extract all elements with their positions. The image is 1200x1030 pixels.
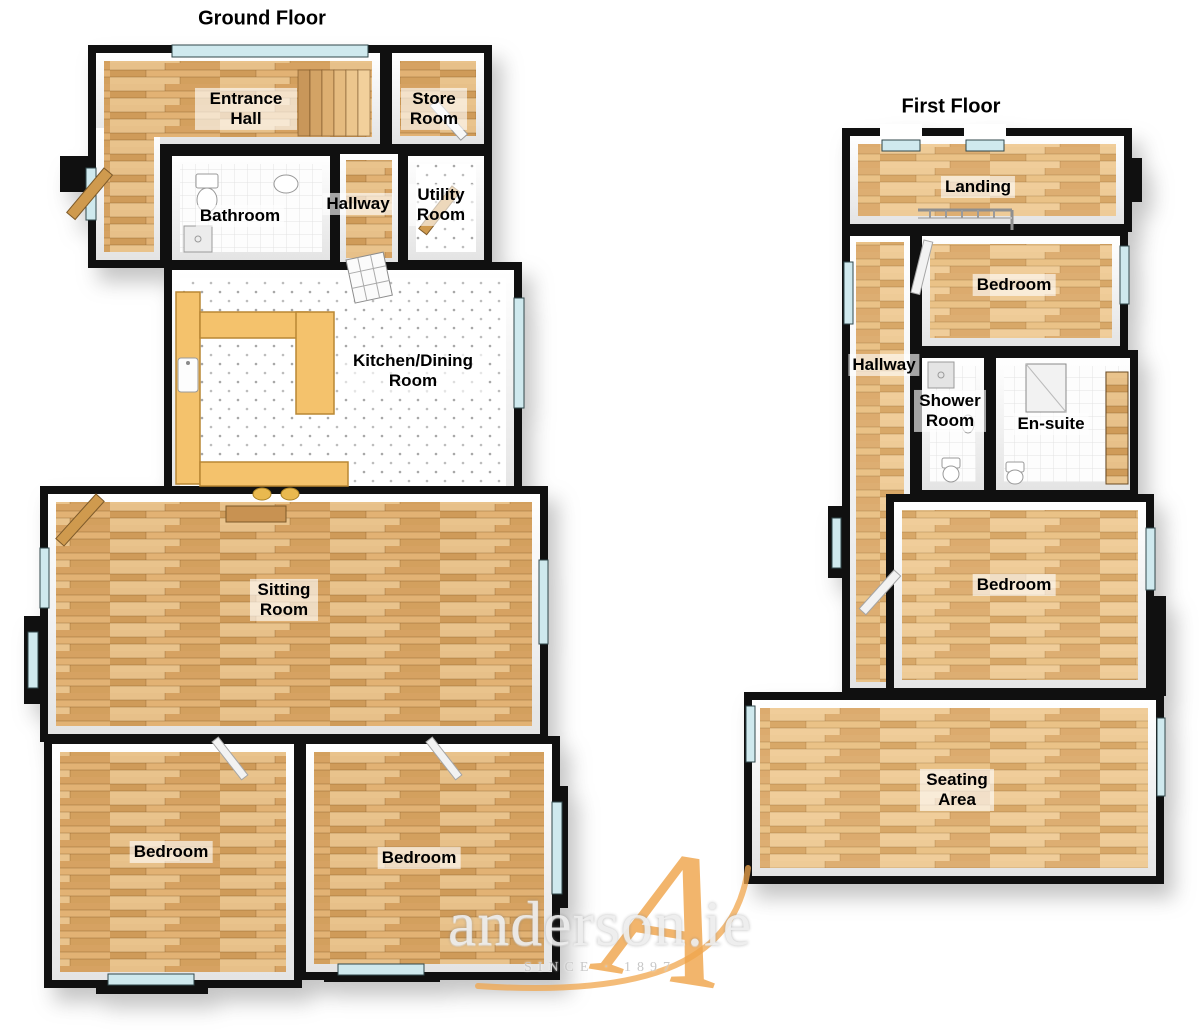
room-label-shower-room: Shower Room bbox=[914, 390, 986, 432]
room-label-hallway-ground: Hallway bbox=[322, 193, 393, 215]
shower-tray-icon bbox=[184, 226, 212, 252]
room-label-sitting-room: Sitting Room bbox=[250, 579, 318, 621]
room-label-bedroom-left: Bedroom bbox=[130, 841, 213, 863]
room-label-landing: Landing bbox=[941, 176, 1015, 198]
room-label-entrance-hall: Entrance Hall bbox=[195, 88, 297, 130]
ensuite-closet-icon bbox=[1106, 372, 1128, 484]
room-label-seating-area: Seating Area bbox=[920, 769, 994, 811]
room-label-en-suite: En-suite bbox=[1013, 413, 1088, 435]
room-label-store-room: Store Room bbox=[401, 88, 467, 130]
room-label-bedroom-top: Bedroom bbox=[973, 274, 1056, 296]
room-label-bedroom-middle: Bedroom bbox=[973, 574, 1056, 596]
room-label-bedroom-right: Bedroom bbox=[378, 847, 461, 869]
room-label-kitchen-dining: Kitchen/Dining Room bbox=[343, 350, 483, 392]
first-floor-title: First Floor bbox=[902, 96, 1001, 119]
console-table-icon bbox=[226, 506, 286, 522]
floorplan-page: Ground Floor First Floor Entrance Hall S… bbox=[0, 0, 1200, 1000]
room-label-utility-room: Utility Room bbox=[409, 184, 473, 226]
stairs-icon bbox=[298, 70, 370, 136]
kitchen-sink-icon bbox=[178, 358, 198, 392]
room-label-bathroom: Bathroom bbox=[196, 205, 284, 227]
sink-icon bbox=[274, 175, 298, 193]
ground-floor-title: Ground Floor bbox=[198, 8, 326, 31]
ground-floor-plan bbox=[24, 45, 568, 994]
toilet-icon bbox=[1006, 462, 1024, 484]
shower-enclosure-icon bbox=[1026, 364, 1066, 412]
toilet-icon bbox=[942, 458, 960, 482]
shower-tray-icon bbox=[928, 362, 954, 388]
room-label-hallway-first: Hallway bbox=[848, 354, 919, 376]
